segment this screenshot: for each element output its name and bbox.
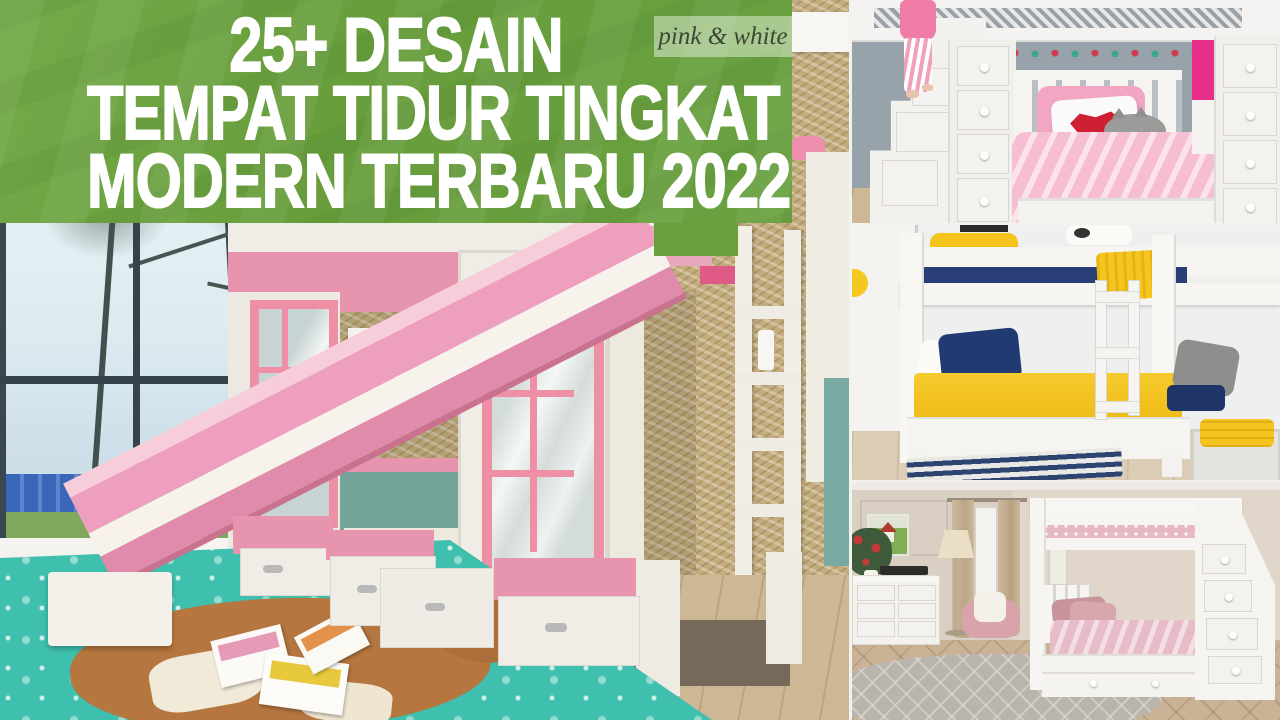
trundle-line xyxy=(1042,672,1204,674)
ladder-rung xyxy=(1095,291,1140,303)
drawer-knob xyxy=(1232,667,1240,675)
stair-drawer xyxy=(896,112,952,152)
dresser-drawer xyxy=(898,585,936,601)
ladder-rung xyxy=(1095,401,1140,413)
bed-lower-teal xyxy=(340,468,458,532)
drawer xyxy=(957,46,1009,86)
drawer-tower xyxy=(948,40,1016,225)
drawer xyxy=(1223,44,1277,88)
drawer-knob xyxy=(980,107,989,116)
drawer xyxy=(1223,140,1277,184)
drawer xyxy=(957,178,1009,222)
drawer-knob xyxy=(980,151,989,160)
ladder-rung xyxy=(735,372,801,385)
teal-side-panel xyxy=(824,378,849,566)
dresser-drawer xyxy=(857,603,895,619)
drawer-knob xyxy=(980,197,989,206)
shelf-column xyxy=(1192,100,1214,154)
tv-strip xyxy=(960,225,1008,232)
banner-notch xyxy=(654,223,738,256)
drawer xyxy=(1223,188,1277,224)
trundle-knob xyxy=(1090,680,1097,687)
drawer-handle xyxy=(545,623,567,632)
ladder-rung xyxy=(735,504,801,517)
girl-foot xyxy=(922,84,933,91)
girl-shirt xyxy=(900,0,936,40)
cat-ear xyxy=(1112,108,1126,118)
stair-drawer xyxy=(1208,656,1262,684)
bed-base-trundle xyxy=(1042,654,1204,697)
ladder-rung xyxy=(1095,347,1140,359)
stair-drawer xyxy=(882,160,938,206)
drawer-knob xyxy=(1229,631,1237,639)
trundle-knob xyxy=(1152,680,1159,687)
dresser xyxy=(852,575,940,645)
window-pane xyxy=(974,506,998,602)
stair-drawer xyxy=(1204,580,1252,612)
drawer-front xyxy=(380,568,494,648)
divider-vertical xyxy=(849,0,852,720)
dresser-drawer xyxy=(898,603,936,619)
drawer-handle xyxy=(425,603,445,611)
divider-horizontal xyxy=(852,223,1280,225)
dresser-drawer xyxy=(857,585,895,601)
watermark-label: pink & white xyxy=(654,16,792,57)
stair-drawer xyxy=(1206,618,1258,650)
title-banner: 25+ DESAIN TEMPAT TIDUR TINGKAT MODERN T… xyxy=(0,0,792,223)
bed-leg xyxy=(1162,451,1182,477)
drawer xyxy=(957,90,1009,130)
lamp-pole xyxy=(954,558,957,632)
slide-base xyxy=(48,572,172,646)
white-pillow-top xyxy=(1066,225,1132,245)
drawer-knob xyxy=(1221,556,1229,564)
title-line-1: 25+ DESAIN xyxy=(87,12,705,80)
drawer xyxy=(957,134,1009,174)
drawer-knob xyxy=(1246,203,1255,212)
photo-bunk-navy-yellow xyxy=(852,225,1280,482)
drawer-front xyxy=(498,596,640,666)
drawer-tower xyxy=(1214,36,1280,225)
drawer-knob xyxy=(1225,593,1233,601)
ottoman-blanket xyxy=(974,592,1006,622)
footboard xyxy=(1018,198,1224,225)
girl-foot xyxy=(906,90,919,98)
photo-loft-bed-pink xyxy=(852,0,1280,225)
drawer-knob xyxy=(1246,111,1255,120)
rail-band xyxy=(900,283,1280,305)
photo-bunk-bedroom-pink xyxy=(852,482,1280,720)
bed-leg xyxy=(766,552,802,664)
dresser-top xyxy=(853,576,939,582)
divider-horizontal xyxy=(852,480,1280,482)
hot-pink-shelf xyxy=(1192,40,1214,100)
white-mug xyxy=(758,330,774,370)
ladder-rung xyxy=(735,438,801,451)
dark-spot xyxy=(1074,228,1090,238)
cat-ear xyxy=(1134,107,1148,117)
drawer-knob xyxy=(1246,159,1255,168)
dresser-drawer xyxy=(857,621,895,637)
tv-on-dresser xyxy=(880,566,928,575)
wall-picture-frame xyxy=(792,12,849,52)
ladder-rung xyxy=(735,306,801,319)
navy-cushion xyxy=(1167,385,1225,411)
drawer-handle xyxy=(263,565,283,573)
stair-drawer xyxy=(1202,544,1246,574)
drawer-knob xyxy=(1246,63,1255,72)
title-line-3: MODERN TERBARU 2022 xyxy=(87,148,705,216)
window-grid-h xyxy=(492,470,574,477)
title-line-2: TEMPAT TIDUR TINGKAT xyxy=(87,80,705,148)
ceiling-trim xyxy=(852,482,1280,490)
thumbnail-canvas: 25+ DESAIN TEMPAT TIDUR TINGKAT MODERN T… xyxy=(0,0,1280,720)
dresser-drawer xyxy=(898,621,936,637)
drawer-front xyxy=(240,548,336,596)
folded-yellow-blanket xyxy=(1200,419,1274,447)
drawer xyxy=(1223,92,1277,136)
drawer-trim-pink xyxy=(494,558,636,600)
drawer-handle xyxy=(357,585,377,593)
drawer-knob xyxy=(980,63,989,72)
